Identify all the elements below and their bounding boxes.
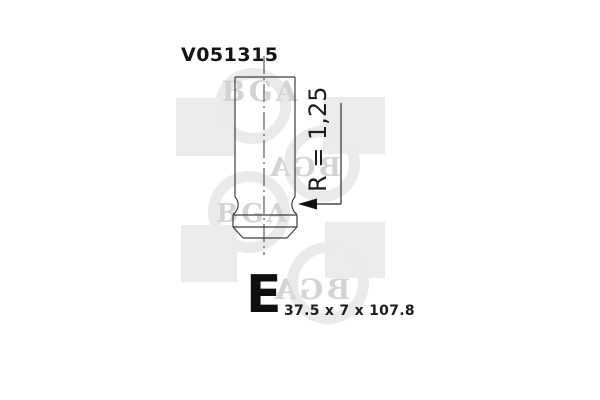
radius-arrow-icon: [298, 199, 317, 210]
radius-annotation-label: R = 1,25: [303, 87, 333, 192]
valve-head-chamfer-right: [287, 227, 297, 238]
valve-technical-diagram: BGA BGA BGA BGA: [0, 0, 600, 400]
valve-groove-left: [233, 197, 238, 215]
valve-type-letter: E: [246, 269, 282, 321]
valve-dimensions-label: 37.5 x 7 x 107.8: [284, 303, 415, 319]
valve-outline-drawing: [0, 0, 600, 400]
valve-head-chamfer-left: [233, 227, 243, 238]
part-number-label: V051315: [181, 44, 279, 66]
valve-groove-right: [292, 197, 297, 215]
